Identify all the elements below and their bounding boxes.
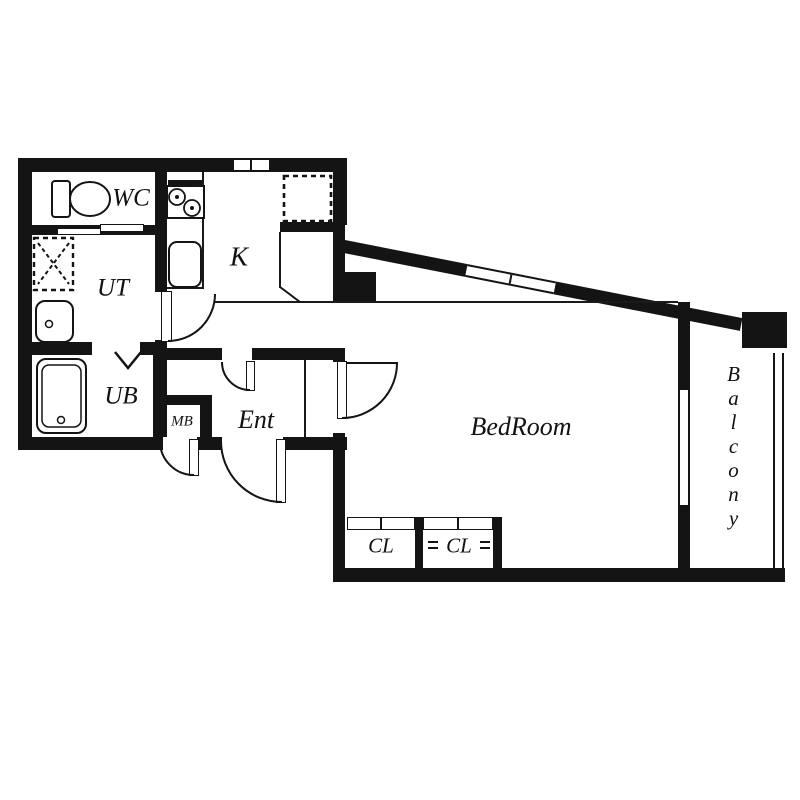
room-label-closet1: CL	[368, 536, 394, 557]
bathtub-icon	[37, 359, 86, 433]
fridge-space-icon	[284, 176, 331, 221]
room-label-bedroom: BedRoom	[470, 414, 571, 440]
room-label-ub: UB	[104, 384, 137, 409]
front-door-arc	[221, 441, 282, 502]
room-label-closet2: CL	[446, 536, 472, 557]
stove-burner-center	[175, 195, 179, 199]
floorplan: WC UT UB MB K Ent BedRoom CL CL Balcony	[0, 0, 800, 800]
room-label-entrance: Ent	[238, 407, 274, 433]
ent-inner-door-arc	[222, 362, 250, 390]
room-label-kitchen: K	[230, 244, 248, 271]
toilet-bowl-icon	[70, 182, 110, 216]
room-label-ut: UT	[97, 276, 129, 301]
washer-pan-cross-icon	[38, 243, 69, 284]
room-label-balcony: Balcony	[723, 362, 744, 530]
toilet-tank-icon	[52, 181, 70, 217]
closet2-dash-mark	[480, 541, 490, 549]
vanity-sink-icon	[36, 301, 73, 342]
kitchen-corner-line	[280, 287, 300, 302]
closet2-dash-mark	[428, 541, 438, 549]
room-label-mb: MB	[171, 415, 193, 430]
bedroom-door-arc	[342, 363, 397, 418]
vanity-faucet-icon	[46, 321, 53, 328]
kitchen-sink-icon	[169, 242, 201, 287]
room-label-wc: WC	[112, 186, 150, 211]
kitchen-door-arc	[168, 294, 215, 341]
stove-burner-center	[190, 206, 194, 210]
mb-door-arc	[160, 441, 194, 475]
bath-folding-door-icon	[115, 352, 141, 368]
